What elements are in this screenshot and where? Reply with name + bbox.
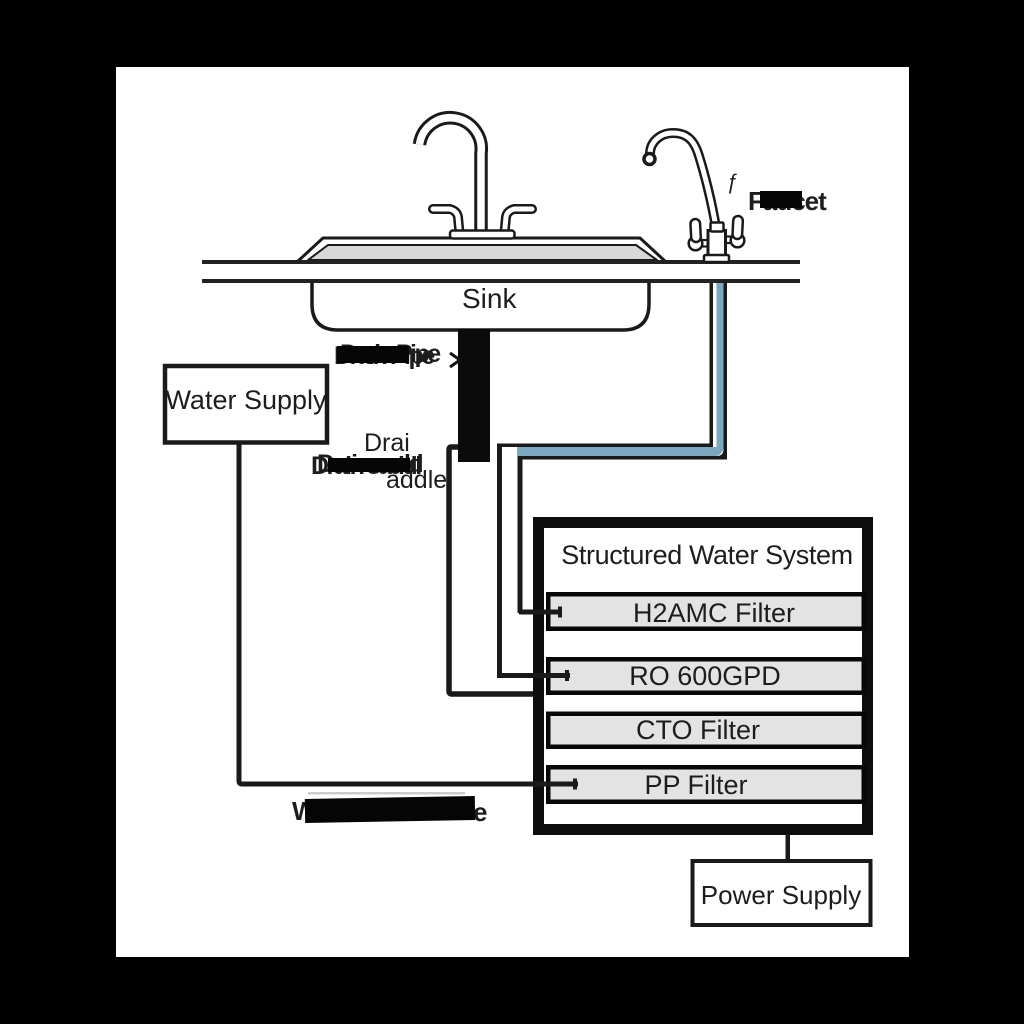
svg-text:RO 600GPD: RO 600GPD	[629, 661, 781, 691]
svg-text:Power Supply: Power Supply	[701, 880, 861, 910]
svg-text:Structured Water System: Structured Water System	[561, 540, 852, 570]
svg-text:CTO Filter: CTO Filter	[636, 715, 760, 745]
svg-text:H2AMC Filter: H2AMC Filter	[633, 598, 795, 628]
svg-text:ƒ: ƒ	[727, 171, 739, 194]
svg-text:e: e	[473, 797, 487, 827]
svg-text:PP Filter: PP Filter	[644, 770, 747, 800]
svg-text:Water Supply: Water Supply	[165, 385, 327, 415]
svg-text:addle: addle	[386, 466, 447, 494]
svg-text:Sink: Sink	[462, 283, 517, 314]
